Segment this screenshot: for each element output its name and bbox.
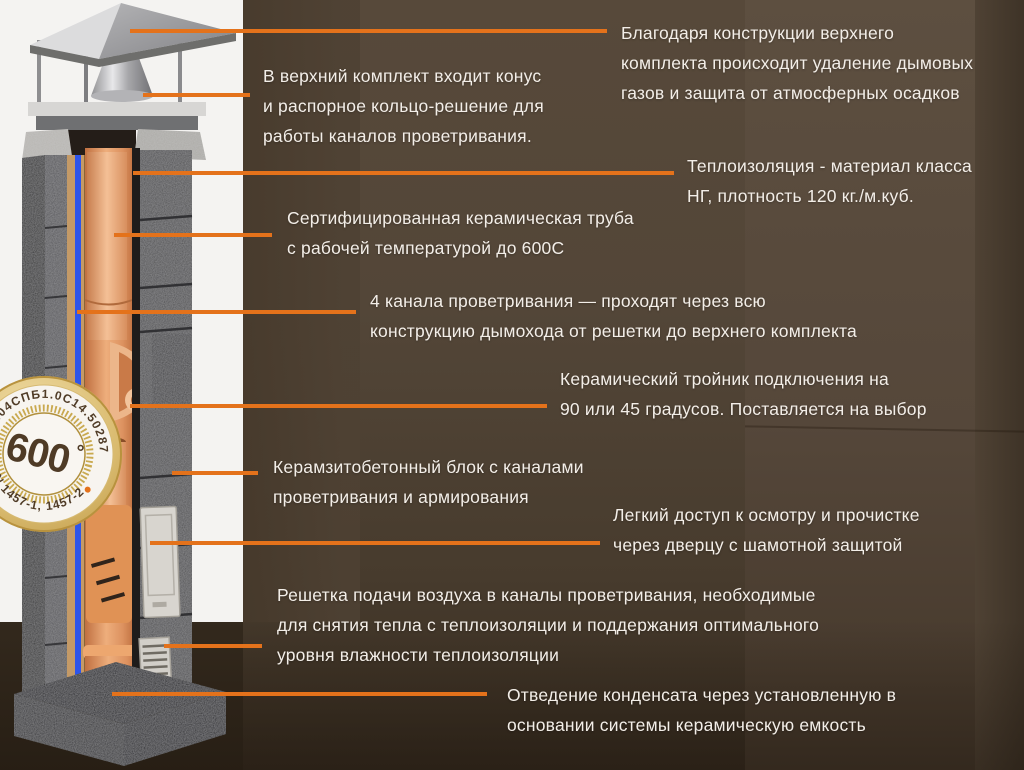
annotation-line: для снятия тепла с теплоизоляции и подде… — [277, 610, 819, 640]
annotation-line: через дверцу с шамотной защитой — [613, 530, 920, 560]
annotation-concrete-block: Керамзитобетонный блок с каналами провет… — [273, 452, 584, 512]
cutaway-edge — [132, 148, 140, 693]
annotation-line: комплекта происходит удаление дымовых — [621, 48, 973, 78]
callout-cap-exhaust — [130, 29, 607, 33]
callout-insulation — [133, 171, 674, 175]
annotation-vent-channels: 4 канала проветривания — проходят через … — [370, 286, 857, 346]
callout-inspection-door — [150, 541, 600, 545]
door-handle — [152, 602, 166, 607]
annotation-inspection-door: Легкий доступ к осмотру и прочистке чере… — [613, 500, 920, 560]
annotation-tee-connection: Керамический тройник подключения на 90 и… — [560, 364, 927, 424]
background-wall-seam — [745, 425, 1024, 432]
annotation-line: и распорное кольцо-решение для — [263, 91, 544, 121]
inspection-door — [140, 506, 180, 617]
annotation-line: Легкий доступ к осмотру и прочистке — [613, 500, 920, 530]
annotation-condensate: Отведение конденсата через установленную… — [507, 680, 896, 740]
annotation-line: Теплоизоляция - материал класса — [687, 151, 972, 181]
annotation-line: В верхний комплект входит конус — [263, 61, 544, 91]
chimney-illustration: 9.04СПБ1.0С14.50287 EN 1457-1, 1457-2 60… — [0, 0, 250, 770]
annotation-top-kit: В верхний комплект входит конус и распор… — [263, 61, 544, 151]
annotation-line: 4 канала проветривания — проходят через … — [370, 286, 857, 316]
callout-condensate — [112, 692, 487, 696]
cap-base-band — [36, 116, 198, 130]
annotation-line: уровня влажности теплоизоляции — [277, 640, 819, 670]
annotation-line: Отведение конденсата через установленную… — [507, 680, 896, 710]
annotation-cap-exhaust: Благодаря конструкции верхнего комплекта… — [621, 18, 973, 108]
annotation-line: Керамический тройник подключения на — [560, 364, 927, 394]
tee-opening-notch — [152, 334, 192, 404]
callout-air-grille — [164, 644, 262, 648]
cap-base-plate — [28, 102, 206, 116]
callout-ceramic-pipe — [114, 233, 272, 237]
annotation-ceramic-pipe: Сертифицированная керамическая труба с р… — [287, 203, 634, 263]
annotation-line: с рабочей температурой до 600С — [287, 233, 634, 263]
annotation-air-grille: Решетка подачи воздуха в каналы проветри… — [277, 580, 819, 670]
annotation-line: основании системы керамическую емкость — [507, 710, 896, 740]
annotation-line: газов и защита от атмосферных осадков — [621, 78, 973, 108]
annotation-line: НГ, плотность 120 кг./м.куб. — [687, 181, 972, 211]
annotation-line: Керамзитобетонный блок с каналами — [273, 452, 584, 482]
callout-tee-connection — [130, 404, 547, 408]
annotation-line: Благодаря конструкции верхнего — [621, 18, 973, 48]
infographic-chimney: 9.04СПБ1.0С14.50287 EN 1457-1, 1457-2 60… — [0, 0, 1024, 770]
annotation-insulation: Теплоизоляция - материал класса НГ, плот… — [687, 151, 972, 211]
annotation-line: работы каналов проветривания. — [263, 121, 544, 151]
annotation-line: проветривания и армирования — [273, 482, 584, 512]
callout-top-kit — [143, 93, 250, 97]
callout-concrete-block — [172, 471, 258, 475]
background-wall-edge — [975, 0, 1024, 770]
annotation-line: конструкцию дымохода от решетки до верхн… — [370, 316, 857, 346]
annotation-line: 90 или 45 градусов. Поставляется на выбо… — [560, 394, 927, 424]
annotation-line: Сертифицированная керамическая труба — [287, 203, 634, 233]
annotation-line: Решетка подачи воздуха в каналы проветри… — [277, 580, 819, 610]
callout-vent-channels — [77, 310, 356, 314]
